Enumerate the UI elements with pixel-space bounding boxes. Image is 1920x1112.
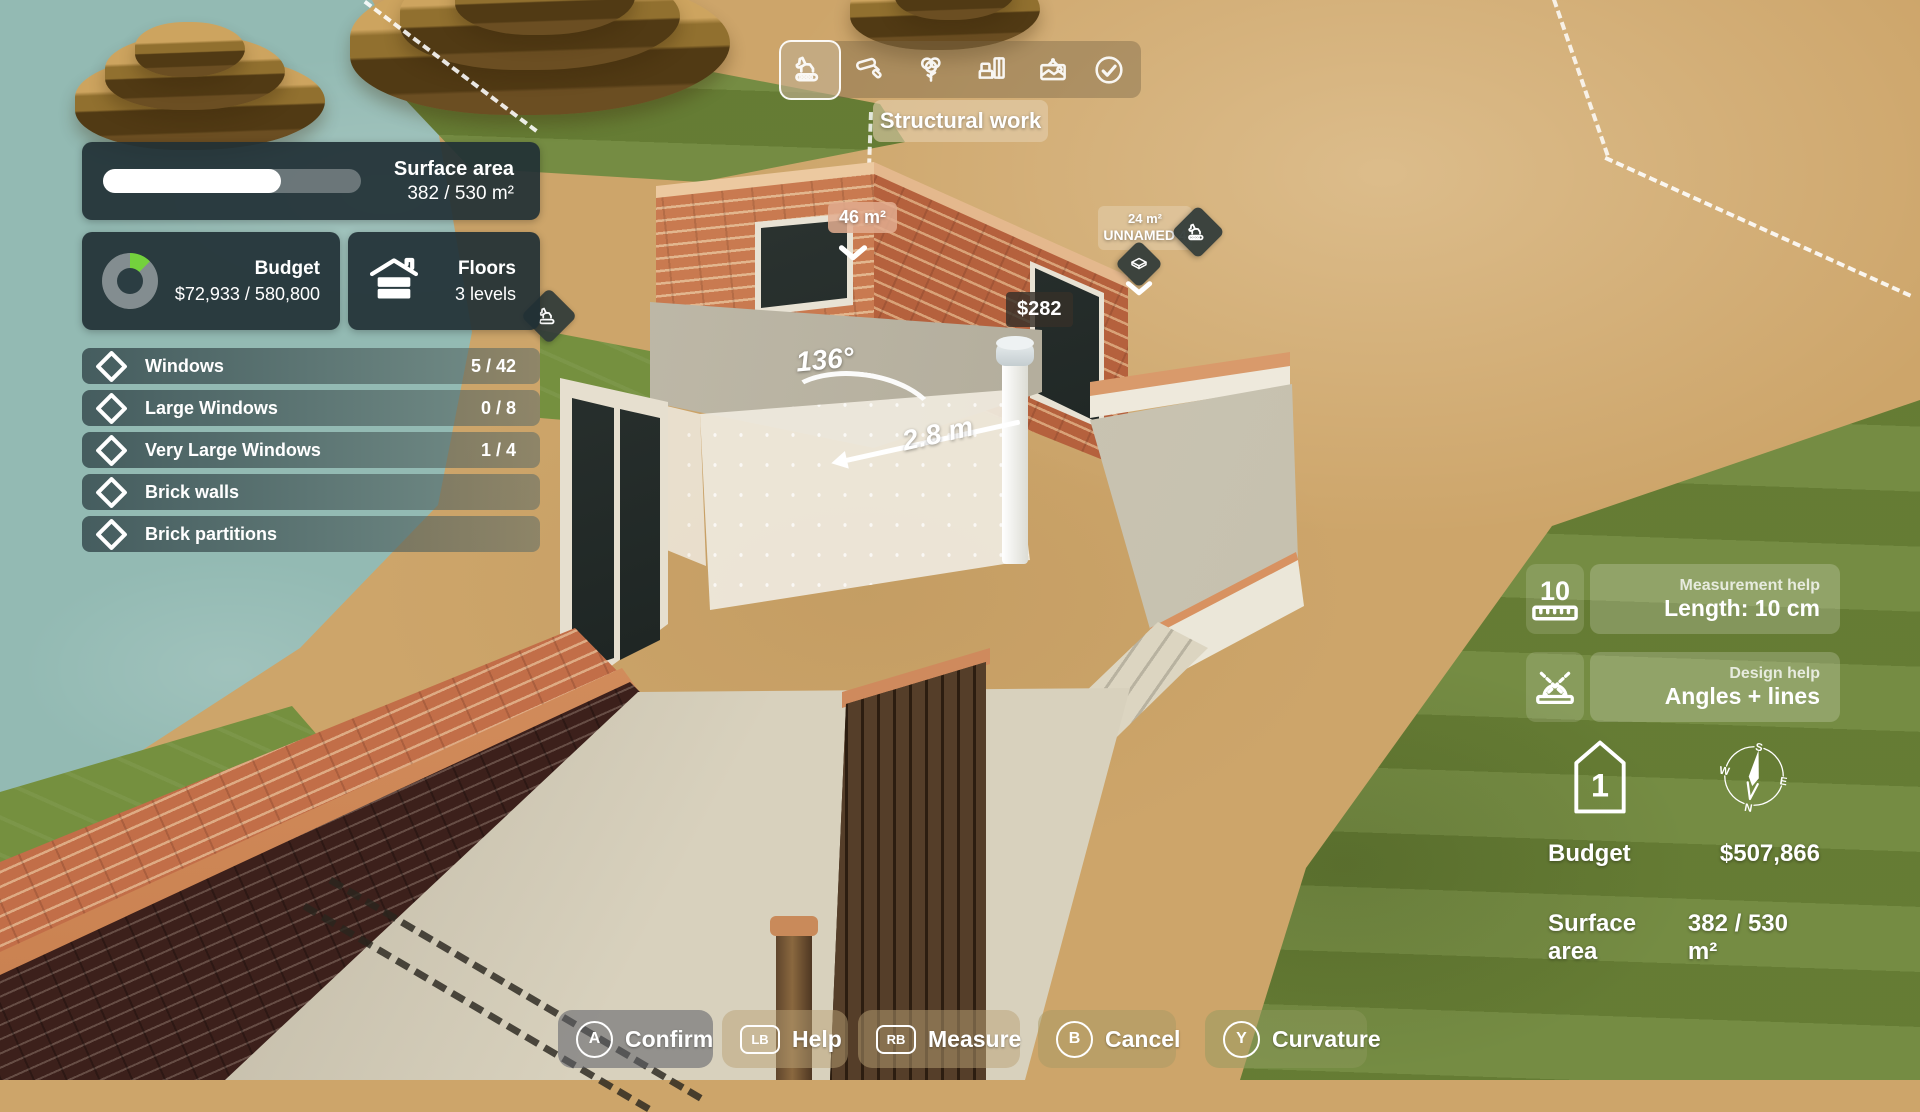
excavator-icon: [537, 304, 561, 328]
tree-icon[interactable]: [914, 53, 948, 87]
protractor-icon: [1533, 665, 1577, 709]
wall-corner-post[interactable]: [1002, 352, 1028, 564]
surface-area-label: Surface area: [394, 156, 514, 182]
compass-west: W: [1718, 765, 1731, 779]
objective-label: Large Windows: [145, 398, 481, 419]
gamepad-lb-icon: LB: [740, 1025, 780, 1054]
measure-label: Measure: [928, 1026, 1021, 1053]
cancel-label: Cancel: [1105, 1026, 1180, 1053]
surface-total-row: Surface area 382 / 530 m²: [1548, 910, 1820, 966]
gamepad-y-icon: Y: [1223, 1021, 1260, 1058]
gamepad-a-icon: A: [576, 1021, 613, 1058]
furniture-icon[interactable]: [975, 53, 1009, 87]
surface-area-progress: [103, 169, 361, 193]
measurement-help-title: Measurement help: [1590, 577, 1820, 595]
measurement-help-value: Length: 10 cm: [1590, 595, 1820, 622]
objective-count: 0 / 8: [481, 398, 516, 419]
compass: S E N W: [1710, 732, 1798, 820]
objective-row: Windows 5 / 42: [82, 348, 540, 384]
floor-level-value: 1: [1591, 767, 1609, 803]
objective-diamond-icon: [95, 434, 128, 467]
compass-south: S: [1754, 741, 1763, 754]
floors-card: Floors 3 levels: [348, 232, 540, 330]
ruler-icon: [1532, 605, 1578, 621]
objective-count: 5 / 42: [471, 356, 516, 377]
objective-diamond-icon: [95, 392, 128, 425]
objective-label: Windows: [145, 356, 471, 377]
objective-row: Brick partitions: [82, 516, 540, 552]
surface-area-card: Surface area 382 / 530 m²: [82, 142, 540, 220]
surface-area-progress-fill: [103, 169, 281, 193]
objective-label: Very Large Windows: [145, 440, 481, 461]
confirm-label: Confirm: [625, 1026, 713, 1053]
ruler-value: 10: [1540, 578, 1570, 605]
budget-donut: [102, 253, 158, 309]
post-handle-top: [996, 336, 1034, 350]
check-circle-icon[interactable]: [1092, 53, 1126, 87]
budget-card: Budget $72,933 / 580,800: [82, 232, 340, 330]
measurement-help-icon-tile[interactable]: 10: [1526, 564, 1584, 634]
room-area-tag: 46 m²: [828, 202, 897, 233]
compass-east: E: [1779, 775, 1788, 788]
measure-button[interactable]: RB Measure: [858, 1010, 1020, 1068]
cost-tag: $282: [1006, 292, 1073, 327]
budget-total-label: Budget: [1548, 840, 1631, 868]
floor-level-indicator[interactable]: 1: [1572, 738, 1628, 816]
budget-value: $72,933 / 580,800: [175, 282, 320, 306]
design-help-icon-tile[interactable]: [1526, 652, 1584, 722]
budget-total-value: $507,866: [1720, 840, 1820, 868]
help-label: Help: [792, 1026, 842, 1053]
objective-label: Brick walls: [145, 482, 516, 503]
design-help-tile[interactable]: Design help Angles + lines: [1590, 652, 1840, 722]
objective-diamond-icon: [95, 518, 128, 551]
design-help-title: Design help: [1590, 665, 1820, 683]
floors-value: 3 levels: [455, 282, 516, 306]
room-area: 24 m²: [1102, 211, 1188, 227]
active-tool-label: Structural work: [873, 100, 1048, 142]
surface-area-value: 382 / 530 m²: [394, 182, 514, 207]
excavator-icon: [1186, 220, 1210, 244]
objective-label: Brick partitions: [145, 524, 516, 545]
curvature-label: Curvature: [1272, 1026, 1381, 1053]
help-button[interactable]: LB Help: [722, 1010, 848, 1068]
budget-total-row: Budget $507,866: [1548, 840, 1820, 868]
objective-row: Large Windows 0 / 8: [82, 390, 540, 426]
curvature-button[interactable]: Y Curvature: [1205, 1010, 1367, 1068]
objective-diamond-icon: [95, 476, 128, 509]
floors-icon: [366, 250, 422, 312]
wood-post-cap: [770, 916, 818, 936]
floors-label: Floors: [455, 256, 516, 282]
compass-north: N: [1743, 802, 1753, 815]
surface-total-value: 382 / 530 m²: [1688, 910, 1820, 966]
angle-label: 136°: [795, 342, 855, 379]
objective-diamond-icon: [95, 350, 128, 383]
gamepad-rb-icon: RB: [876, 1025, 916, 1054]
cancel-button[interactable]: B Cancel: [1038, 1010, 1176, 1068]
confirm-button[interactable]: A Confirm: [558, 1010, 713, 1068]
surface-total-label: Surface area: [1548, 910, 1688, 966]
measurement-help-tile[interactable]: Measurement help Length: 10 cm: [1590, 564, 1840, 634]
chevron-down-icon: [838, 245, 868, 261]
game-screen: { "toolbar": { "active_tool_label": "Str…: [0, 0, 1920, 1080]
picture-frame-icon[interactable]: [1036, 53, 1070, 87]
gamepad-b-icon: B: [1056, 1021, 1093, 1058]
excavator-icon[interactable]: [792, 51, 828, 87]
floor-slab-icon: [1129, 254, 1149, 274]
paint-roller-icon[interactable]: [853, 53, 887, 87]
design-help-value: Angles + lines: [1590, 683, 1820, 710]
objective-row: Very Large Windows 1 / 4: [82, 432, 540, 468]
budget-label: Budget: [175, 256, 320, 282]
objective-count: 1 / 4: [481, 440, 516, 461]
objective-row: Brick walls: [82, 474, 540, 510]
chevron-down-icon: [1125, 281, 1153, 296]
